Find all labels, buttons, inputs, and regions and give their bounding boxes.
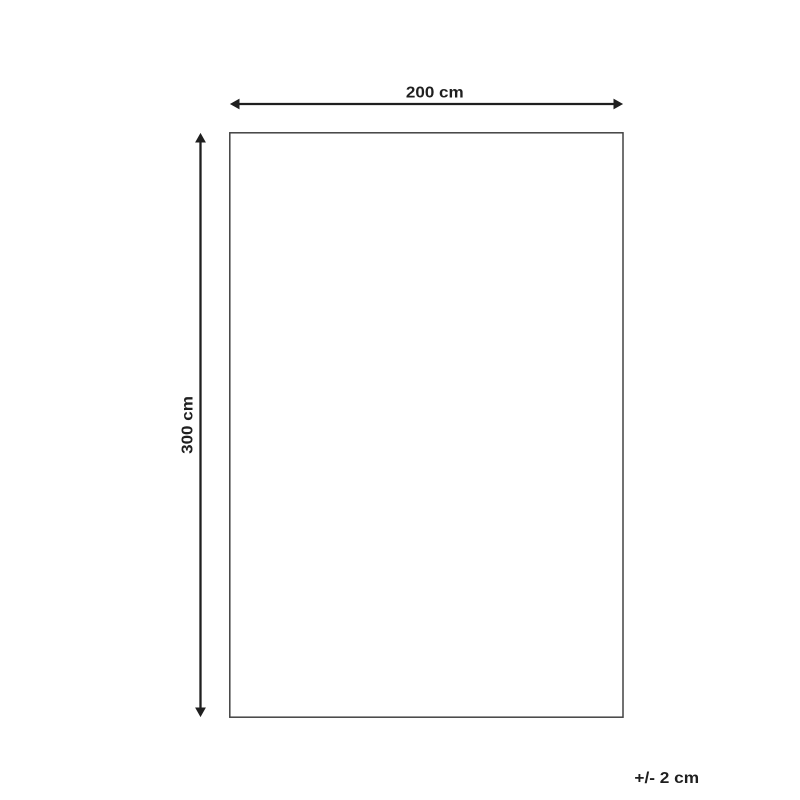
svg-text:300 cm: 300 cm bbox=[179, 396, 196, 454]
svg-text:200 cm: 200 cm bbox=[406, 85, 464, 102]
svg-text:+/- 2 cm: +/- 2 cm bbox=[634, 770, 699, 787]
